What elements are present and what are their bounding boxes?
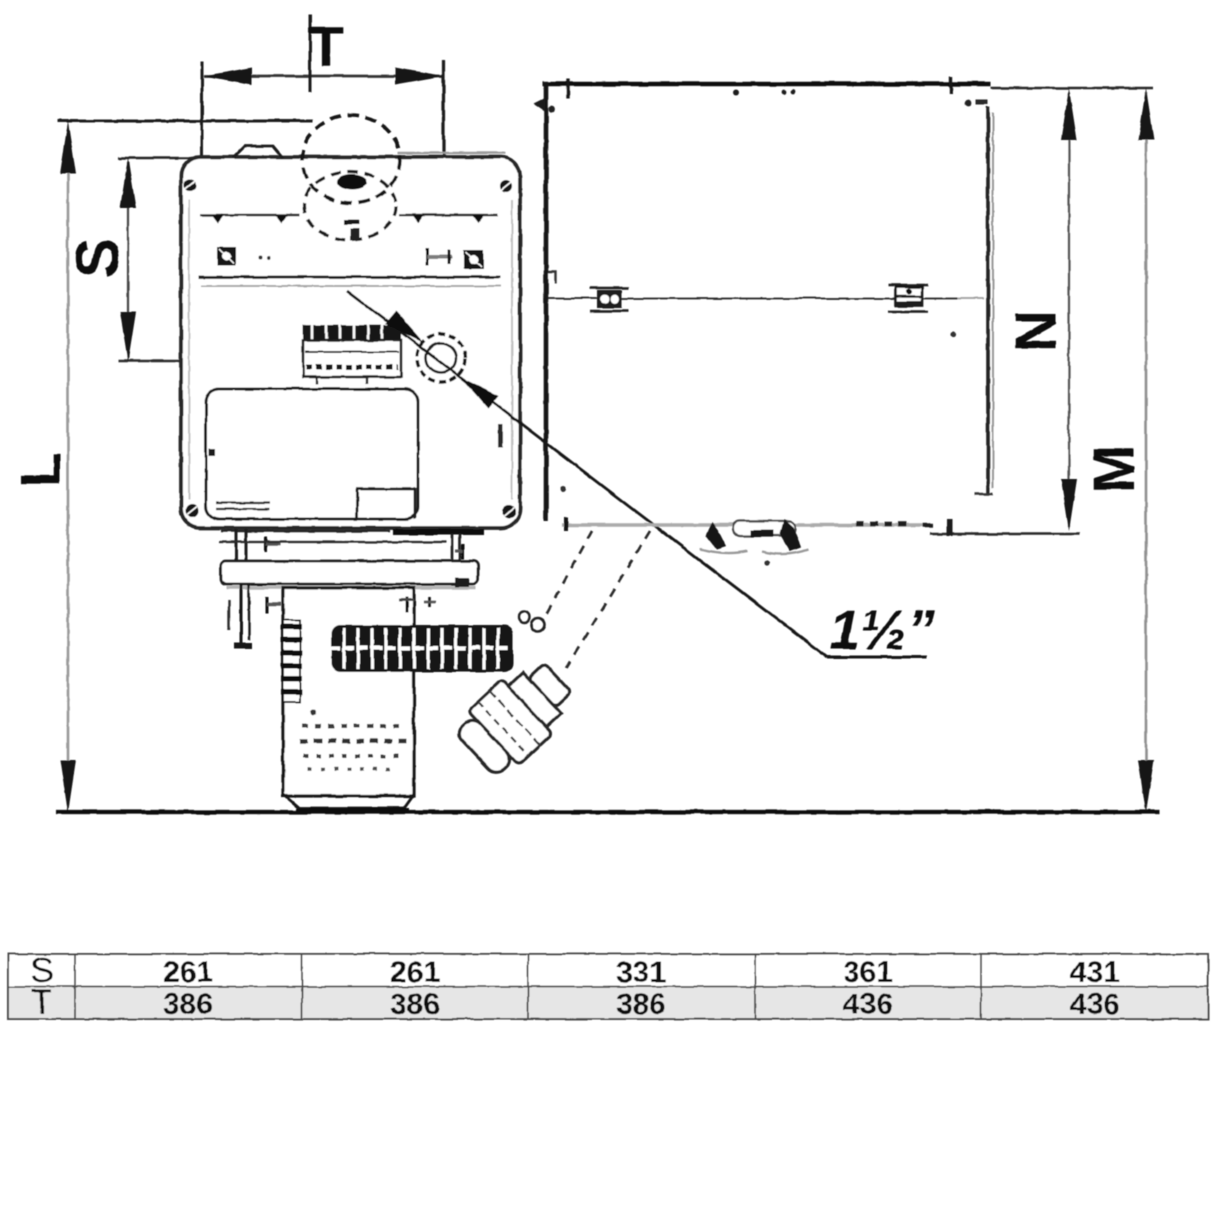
svg-text:436: 436 <box>1070 988 1120 1021</box>
svg-text:261: 261 <box>163 956 213 989</box>
svg-text:386: 386 <box>163 988 213 1021</box>
svg-text:331: 331 <box>616 956 666 989</box>
svg-text:1½”: 1½” <box>829 598 935 661</box>
svg-text:L: L <box>9 453 73 488</box>
svg-text:N: N <box>1004 310 1069 352</box>
svg-text:361: 361 <box>843 956 893 989</box>
svg-text:S: S <box>64 238 131 278</box>
svg-text:M: M <box>1082 445 1147 493</box>
svg-text:431: 431 <box>1070 956 1120 989</box>
svg-text:436: 436 <box>843 988 893 1021</box>
svg-text:T: T <box>31 983 52 1022</box>
svg-text:261: 261 <box>390 956 440 989</box>
svg-text:386: 386 <box>390 988 440 1021</box>
svg-text:386: 386 <box>616 988 666 1021</box>
svg-text:T: T <box>309 15 344 79</box>
